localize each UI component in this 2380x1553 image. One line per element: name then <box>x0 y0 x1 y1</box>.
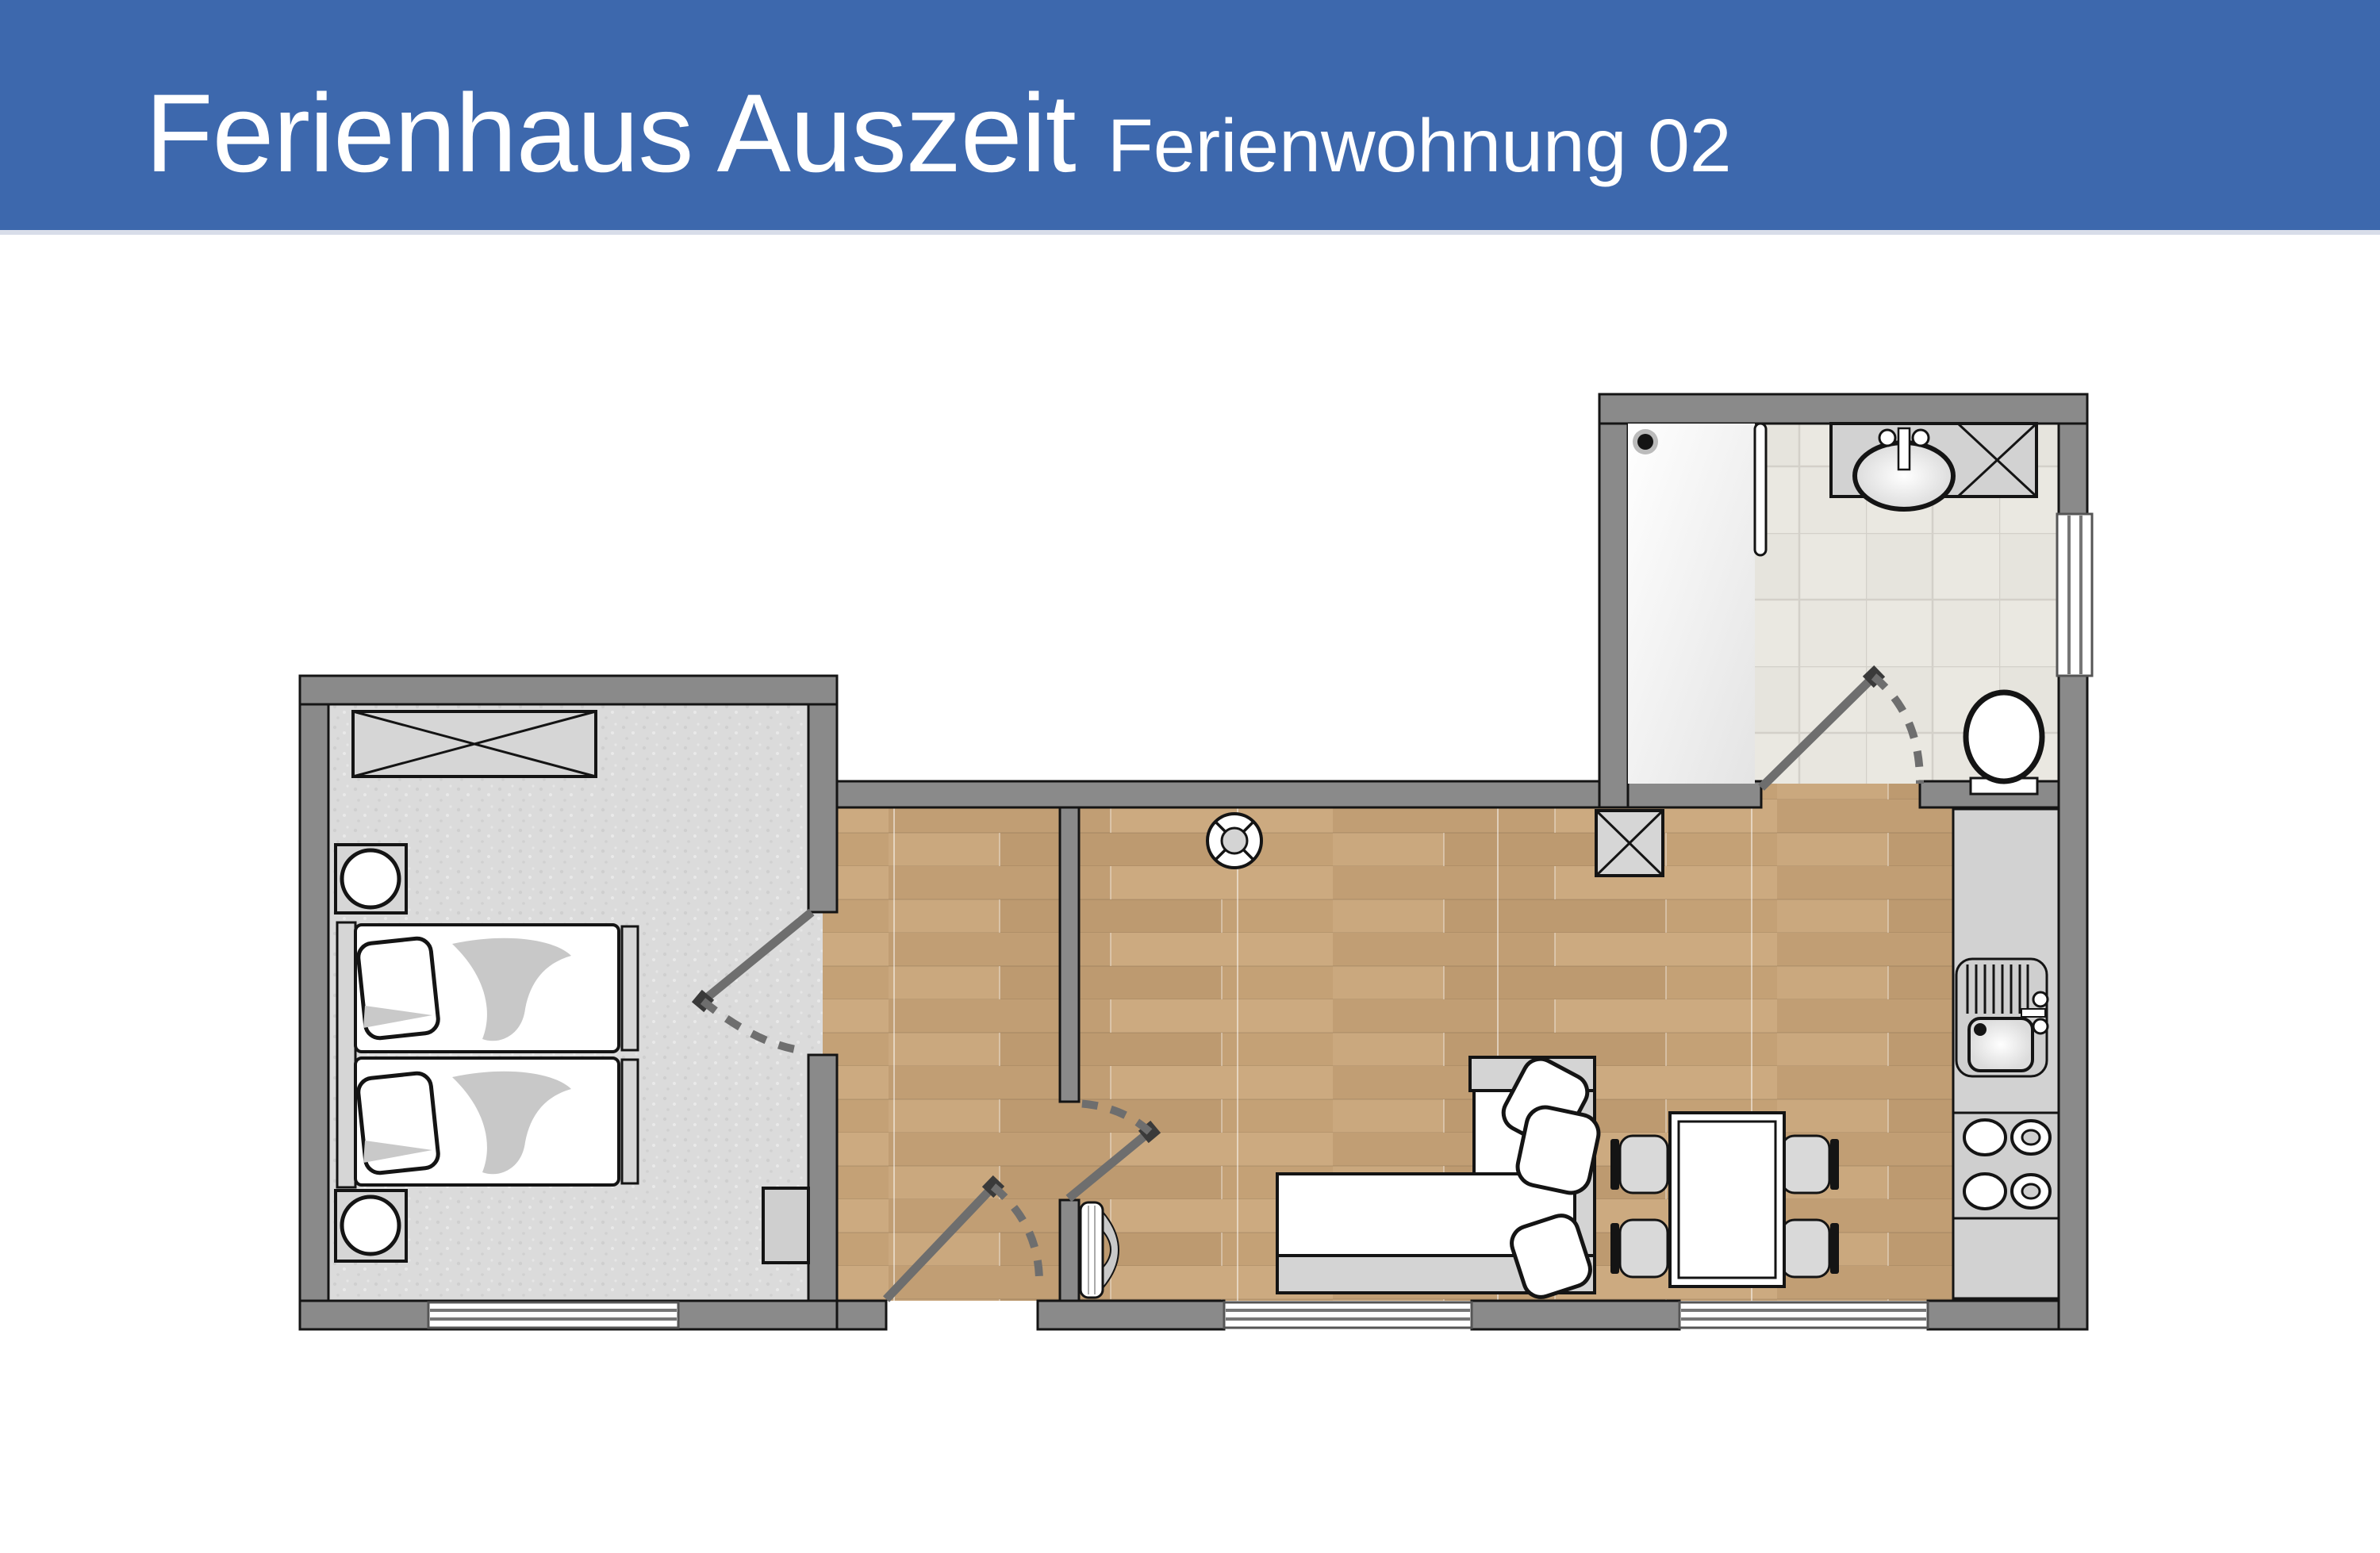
living-window-2 <box>1679 1302 1928 1328</box>
sink-drain <box>1974 1023 1987 1036</box>
dining-table <box>1670 1113 1784 1286</box>
dining-chair <box>1610 1136 1668 1193</box>
bed-footboard-2 <box>622 1060 638 1183</box>
bathroom-door-threshold <box>1761 781 1920 807</box>
nightstand-bottom <box>336 1191 406 1261</box>
stove <box>1953 1113 2059 1218</box>
faucet-icon <box>1898 428 1910 470</box>
shower-pan <box>1628 424 1755 784</box>
sofa-pillow-2 <box>1514 1104 1603 1197</box>
faucet-handle <box>2033 992 2048 1007</box>
bedroom-wall-top <box>300 676 837 704</box>
toilet-bowl <box>1966 692 2042 781</box>
bathroom-wall-top <box>1599 394 2087 424</box>
ceiling-lamp-icon <box>1207 814 1261 868</box>
bed-headboard <box>337 922 355 1187</box>
lamp-icon <box>342 1197 399 1254</box>
floorplan-drawing <box>0 0 2380 1553</box>
partition-wall-upper <box>1060 807 1079 1102</box>
bedroom-window <box>428 1302 678 1328</box>
floorplan-page: Ferienhaus AuszeitFerienwohnung 02 <box>0 0 2380 1553</box>
bathroom-window <box>2057 514 2092 676</box>
vent-shaft <box>1596 811 1663 876</box>
dining-chair <box>1782 1136 1839 1193</box>
kitchen <box>1953 809 2059 1298</box>
bedroom-radiator <box>763 1188 808 1263</box>
living-window-1 <box>1224 1302 1472 1328</box>
shower-drain <box>1637 434 1653 450</box>
wardrobe <box>353 711 596 776</box>
vanity <box>1831 424 2036 509</box>
burner-ring <box>2022 1184 2040 1198</box>
lamp-icon <box>342 850 399 907</box>
bedroom-wall-right-lower <box>808 1055 837 1301</box>
partition-wall-lower <box>1060 1200 1079 1301</box>
kitchen-sink <box>1956 959 2048 1076</box>
hall-wall-bottom-left <box>837 1301 886 1329</box>
nightstand-top <box>336 845 406 913</box>
dining-chair <box>1782 1220 1839 1277</box>
walk-in-shower <box>1628 424 1766 784</box>
burner <box>1964 1174 2006 1209</box>
bedroom-door-threshold-carpet <box>808 912 823 1055</box>
living-wall-bottom-2 <box>1472 1301 1679 1329</box>
toilet <box>1966 692 2042 794</box>
burner-ring <box>2022 1130 2040 1145</box>
faucet-icon <box>2021 1009 2045 1017</box>
bedroom-wall-left <box>300 704 328 1301</box>
bathroom-wall-left <box>1599 424 1628 807</box>
faucet-handle <box>1913 430 1929 446</box>
dining-chair <box>1610 1220 1668 1277</box>
burner <box>1964 1120 2006 1155</box>
shower-glass-panel <box>1755 424 1766 555</box>
faucet-handle <box>2033 1019 2048 1033</box>
bed-footboard-1 <box>622 926 638 1050</box>
faucet-handle <box>1879 430 1895 446</box>
living-wall-bottom-1 <box>1038 1301 1224 1329</box>
bedroom-door-threshold-wood <box>823 912 837 1055</box>
bedroom-wall-right-upper <box>808 704 837 912</box>
